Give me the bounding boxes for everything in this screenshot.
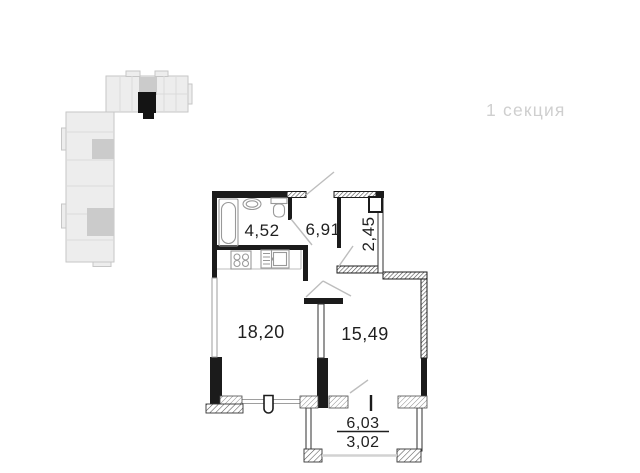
entrance-door-swing — [306, 172, 334, 195]
bathroom-area-label: 4,52 — [244, 221, 279, 240]
kitchen-sink-faucet — [272, 258, 274, 260]
living-room-area-label: 18,20 — [237, 322, 285, 342]
wall-segment — [303, 245, 308, 281]
wall-segment — [304, 298, 343, 304]
balcony-hatch — [206, 404, 243, 413]
balcony-hatch — [304, 449, 322, 462]
living-opening-mark — [306, 281, 323, 297]
windows — [212, 278, 300, 413]
window-column — [264, 396, 273, 414]
stove-burner — [243, 254, 249, 260]
floorplan-page: 1 секция — [0, 0, 640, 473]
balcony-door-swing — [350, 380, 368, 393]
building-bump — [155, 71, 168, 77]
balcony-hatch — [397, 449, 421, 462]
balcony-total-area-label: 6,03 — [346, 415, 379, 432]
building-bump — [62, 204, 67, 228]
bathroom-sink-basin — [246, 201, 258, 207]
wall-segment — [287, 192, 306, 198]
building-bump — [62, 128, 67, 150]
pier — [300, 396, 318, 408]
building-minimap — [62, 71, 193, 267]
wall-segment — [212, 191, 287, 198]
toilet-tank — [271, 198, 287, 204]
window — [212, 278, 217, 357]
building-bump — [188, 84, 192, 104]
building-bump — [93, 262, 111, 267]
wall-segment — [288, 197, 292, 220]
wall-segment — [417, 408, 422, 451]
wall-segment — [306, 408, 311, 455]
wall-segment — [317, 358, 328, 408]
wardrobe-door-swing — [339, 246, 353, 266]
highlighted-unit — [138, 92, 156, 119]
duct-shaft — [369, 197, 382, 212]
stove-burner — [234, 254, 240, 260]
kitchen-fixtures — [217, 250, 301, 269]
wall-segment — [383, 272, 427, 279]
floor-plan: 4,52 6,91 2,45 18,20 15,49 6,03 3,02 — [206, 172, 427, 462]
stove — [231, 251, 251, 269]
hallway-area-label: 6,91 — [305, 220, 340, 239]
wall-segment — [212, 191, 217, 278]
floorplan-canvas: 1 секция — [0, 0, 640, 473]
wall-segment — [337, 266, 383, 273]
building-bump — [126, 71, 140, 77]
stove-burner — [234, 261, 240, 267]
section-label: 1 секция — [486, 100, 566, 120]
stove-burner — [243, 261, 249, 267]
pier — [329, 396, 348, 408]
toilet-bowl — [274, 204, 285, 217]
balcony-counted-area-label: 3,02 — [346, 434, 379, 451]
wall-segment — [421, 279, 427, 358]
bedroom-area-label: 15,49 — [341, 324, 389, 344]
door-swings — [291, 172, 368, 393]
wall-segment — [318, 304, 324, 358]
kitchen-sink-basin — [274, 253, 287, 266]
living-opening-mark — [323, 281, 351, 296]
balcony-area-labels: 6,03 3,02 — [337, 415, 389, 451]
wardrobe-area-label: 2,45 — [359, 216, 378, 251]
kitchen-sink-drainer — [263, 254, 270, 265]
pier — [398, 396, 427, 408]
bathtub-inner — [222, 203, 236, 244]
